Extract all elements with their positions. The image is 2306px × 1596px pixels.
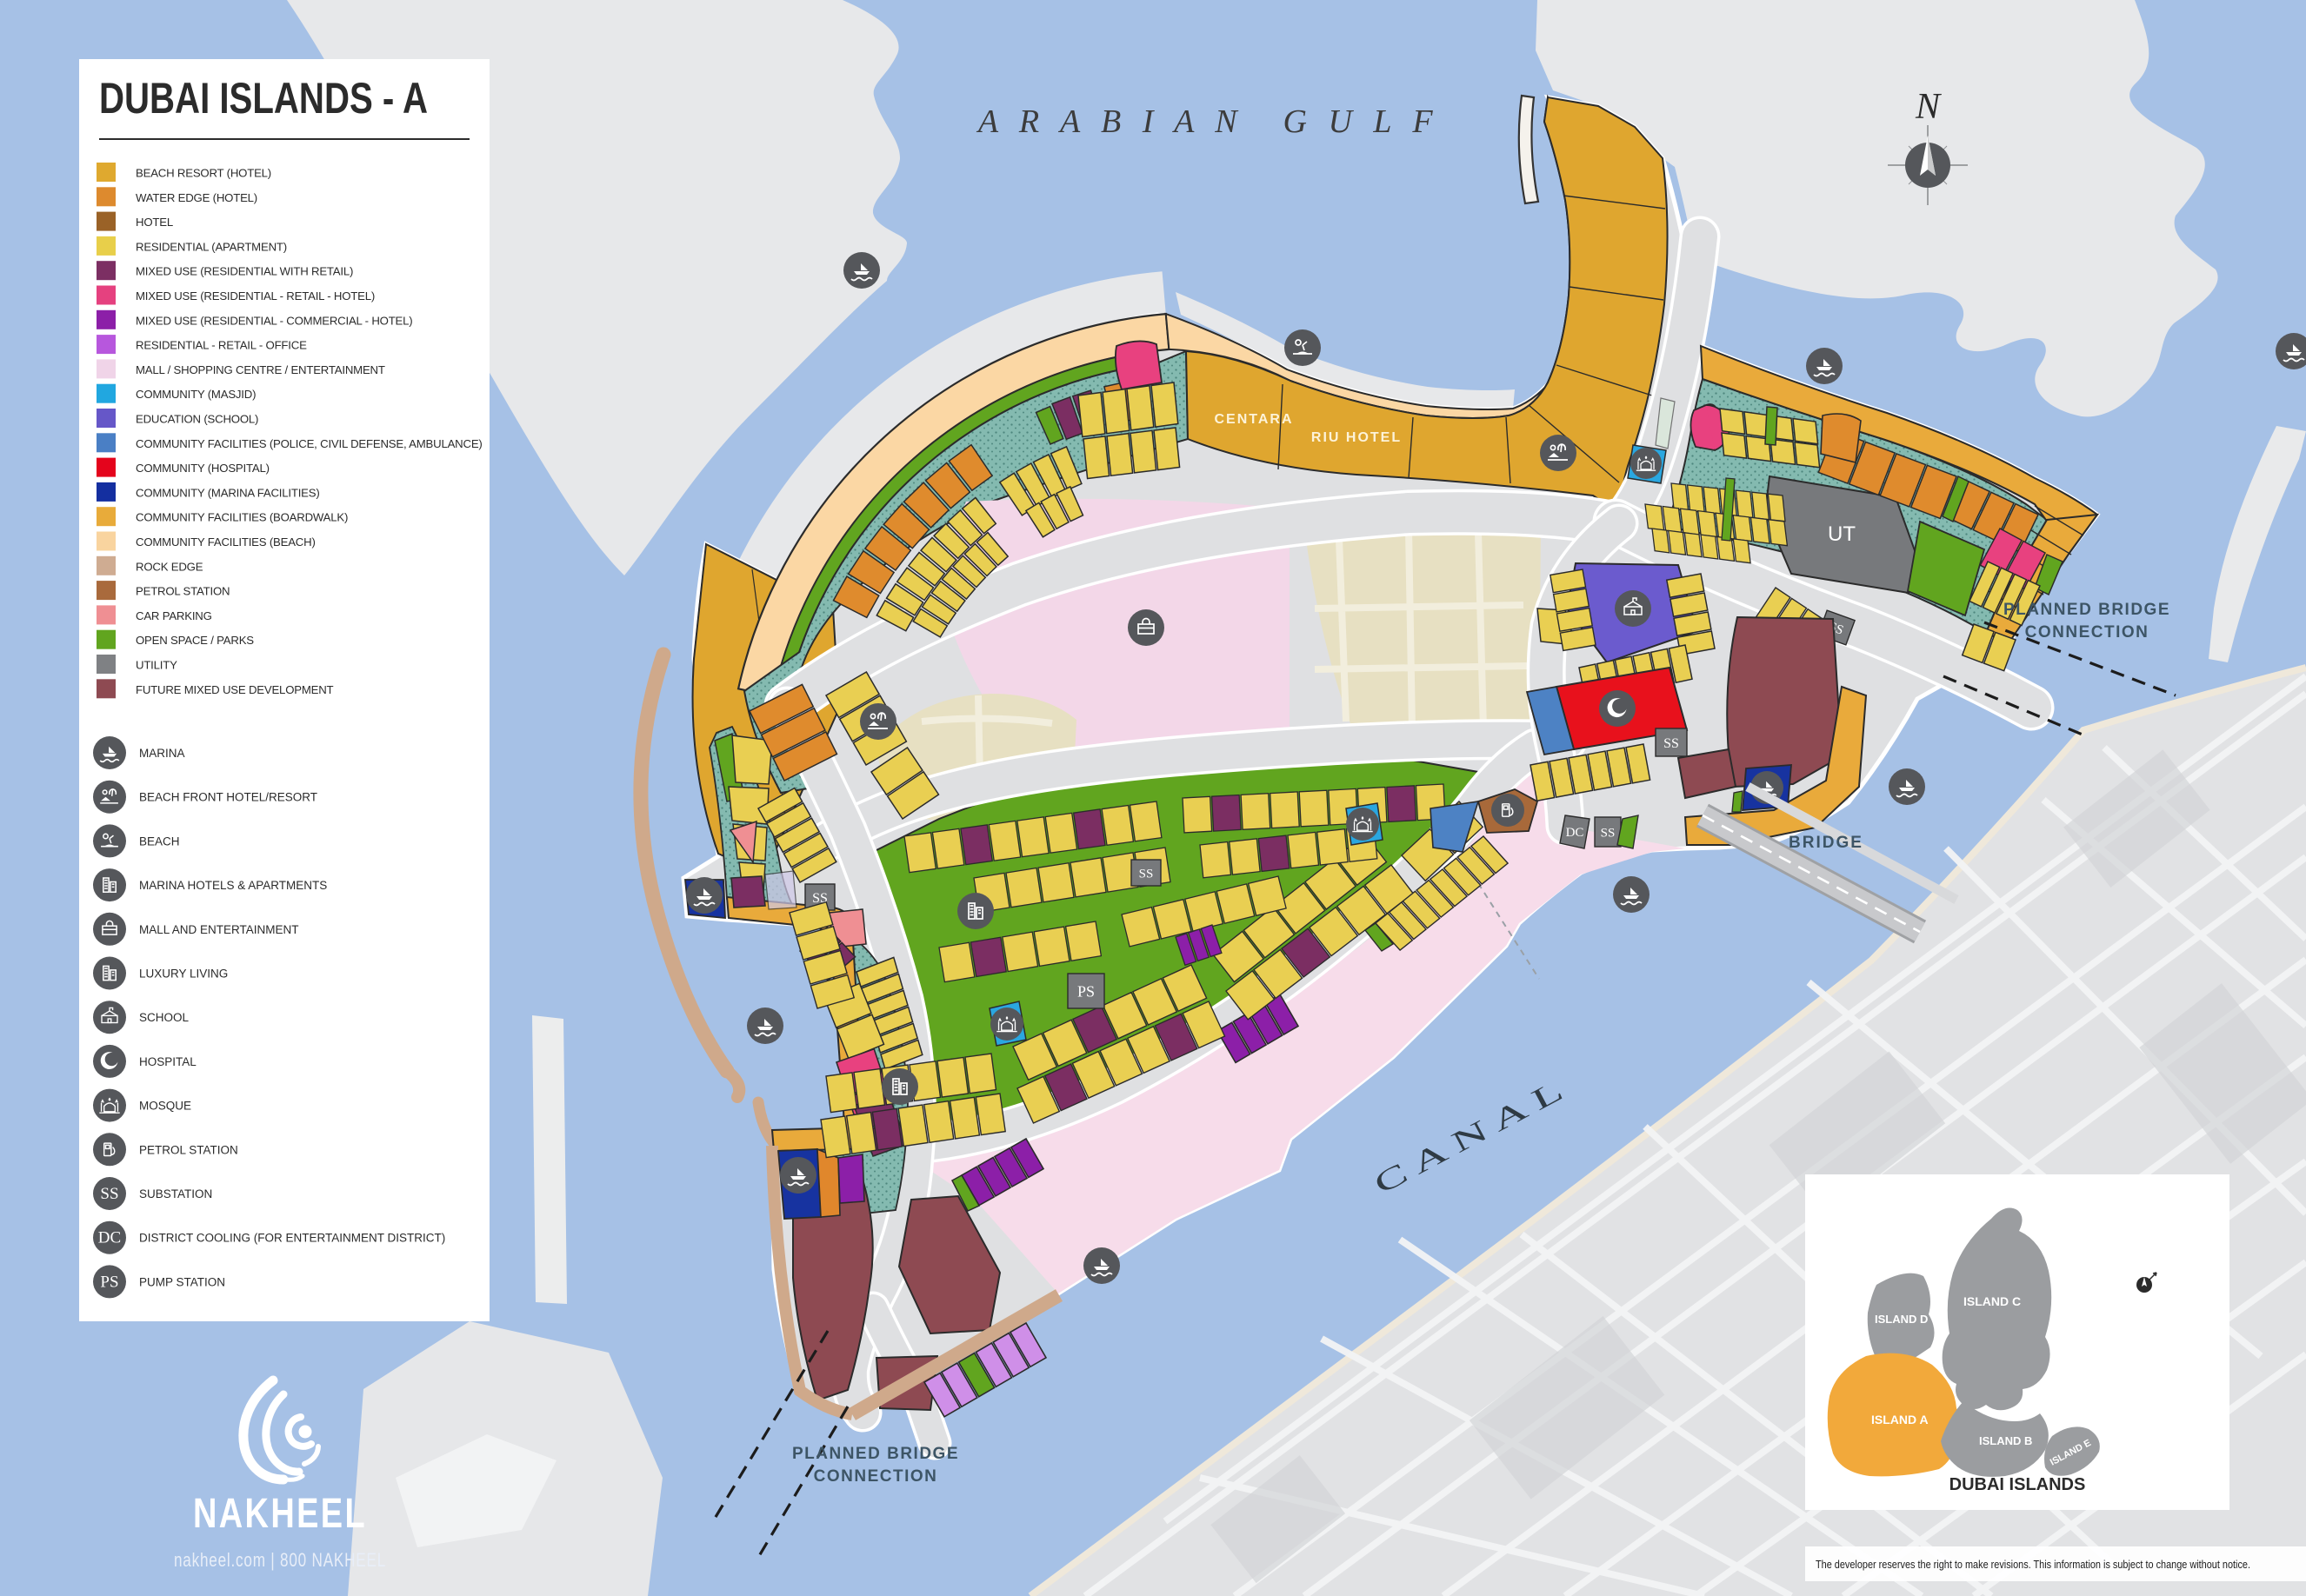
svg-text:PLANNED BRIDGE: PLANNED BRIDGE [2003, 601, 2170, 619]
svg-text:RESIDENTIAL (APARTMENT): RESIDENTIAL (APARTMENT) [136, 240, 287, 253]
svg-text:PUMP STATION: PUMP STATION [139, 1275, 225, 1288]
svg-text:SS: SS [100, 1185, 118, 1203]
svg-text:COMMUNITY (HOSPITAL): COMMUNITY (HOSPITAL) [136, 462, 270, 475]
svg-text:PS: PS [100, 1273, 118, 1291]
svg-text:CAR PARKING: CAR PARKING [136, 609, 212, 622]
svg-text:BEACH: BEACH [139, 835, 180, 848]
svg-text:SS: SS [1663, 736, 1679, 751]
svg-text:MARINA: MARINA [139, 747, 185, 760]
svg-text:DISTRICT COOLING (FOR ENTERTAI: DISTRICT COOLING (FOR ENTERTAINMENT DIST… [139, 1232, 445, 1245]
svg-text:DUBAI ISLANDS - A: DUBAI ISLANDS - A [99, 74, 428, 123]
svg-text:LUXURY LIVING: LUXURY LIVING [139, 968, 228, 981]
svg-text:COMMUNITY FACILITIES (BEACH): COMMUNITY FACILITIES (BEACH) [136, 535, 316, 549]
svg-text:MALL / SHOPPING CENTRE / ENTER: MALL / SHOPPING CENTRE / ENTERTAINMENT [136, 363, 385, 376]
svg-text:UTILITY: UTILITY [136, 659, 177, 672]
svg-text:COMMUNITY (MARINA FACILITIES): COMMUNITY (MARINA FACILITIES) [136, 486, 320, 499]
svg-text:MARINA HOTELS & APARTMENTS: MARINA HOTELS & APARTMENTS [139, 879, 327, 892]
svg-text:N: N [1915, 87, 1942, 127]
svg-text:ISLAND C: ISLAND C [1963, 1294, 2021, 1308]
svg-text:COMMUNITY FACILITIES (BOARDWAL: COMMUNITY FACILITIES (BOARDWALK) [136, 511, 348, 524]
svg-text:BEACH RESORT (HOTEL): BEACH RESORT (HOTEL) [136, 167, 271, 180]
svg-text:ROCK EDGE: ROCK EDGE [136, 560, 203, 573]
svg-text:UT: UT [1828, 522, 1856, 546]
svg-text:HOSPITAL: HOSPITAL [139, 1055, 197, 1068]
svg-text:DC: DC [98, 1229, 121, 1247]
svg-text:The developer reserves the rig: The developer reserves the right to make… [1816, 1559, 2250, 1571]
svg-text:RESIDENTIAL - RETAIL - OFFICE: RESIDENTIAL - RETAIL - OFFICE [136, 339, 307, 352]
svg-text:ISLAND A: ISLAND A [1871, 1413, 1929, 1426]
svg-text:DC: DC [1566, 826, 1584, 840]
svg-text:nakheel.com | 800 NAKHEEL: nakheel.com | 800 NAKHEEL [174, 1549, 386, 1571]
svg-text:MOSQUE: MOSQUE [139, 1100, 191, 1113]
svg-text:HOTEL: HOTEL [136, 216, 173, 229]
svg-text:MIXED USE (RESIDENTIAL WITH RE: MIXED USE (RESIDENTIAL WITH RETAIL) [136, 265, 353, 278]
svg-text:COMMUNITY (MASJID): COMMUNITY (MASJID) [136, 388, 256, 401]
svg-text:NAKHEEL: NAKHEEL [193, 1491, 367, 1537]
svg-text:BRIDGE: BRIDGE [1789, 834, 1863, 852]
svg-text:PS: PS [1077, 982, 1095, 1000]
svg-text:CONNECTION: CONNECTION [814, 1467, 938, 1486]
svg-text:MIXED USE (RESIDENTIAL - COMME: MIXED USE (RESIDENTIAL - COMMERCIAL - HO… [136, 314, 412, 327]
svg-text:PETROL STATION: PETROL STATION [136, 585, 230, 598]
svg-text:PETROL STATION: PETROL STATION [139, 1143, 238, 1156]
svg-text:SS: SS [1139, 867, 1154, 881]
svg-text:ISLAND D: ISLAND D [1875, 1313, 1928, 1326]
svg-text:ISLAND B: ISLAND B [1979, 1434, 2032, 1447]
svg-text:RIU HOTEL: RIU HOTEL [1311, 430, 1402, 445]
svg-text:CENTARA: CENTARA [1214, 412, 1293, 427]
svg-text:WATER EDGE (HOTEL): WATER EDGE (HOTEL) [136, 191, 257, 204]
svg-text:COMMUNITY FACILITIES (POLICE,: COMMUNITY FACILITIES (POLICE, CIVIL DEFE… [136, 437, 483, 450]
svg-text:FUTURE MIXED USE DEVELOPMENT: FUTURE MIXED USE DEVELOPMENT [136, 683, 334, 696]
svg-text:EDUCATION (SCHOOL): EDUCATION (SCHOOL) [136, 413, 258, 426]
svg-text:MIXED USE (RESIDENTIAL - RETAI: MIXED USE (RESIDENTIAL - RETAIL - HOTEL) [136, 289, 375, 303]
svg-text:SS: SS [1601, 826, 1616, 840]
svg-text:SCHOOL: SCHOOL [139, 1011, 190, 1024]
svg-text:SUBSTATION: SUBSTATION [139, 1187, 212, 1200]
svg-text:MALL AND ENTERTAINMENT: MALL AND ENTERTAINMENT [139, 923, 299, 936]
svg-text:BEACH FRONT HOTEL/RESORT: BEACH FRONT HOTEL/RESORT [139, 791, 317, 804]
svg-text:OPEN SPACE / PARKS: OPEN SPACE / PARKS [136, 634, 254, 647]
svg-text:A R A B I A N G U L F: A R A B I A N G U L F [976, 103, 1439, 140]
svg-text:CONNECTION: CONNECTION [2025, 623, 2149, 642]
svg-text:PLANNED BRIDGE: PLANNED BRIDGE [792, 1445, 959, 1463]
svg-text:DUBAI ISLANDS: DUBAI ISLANDS [1949, 1475, 2086, 1494]
